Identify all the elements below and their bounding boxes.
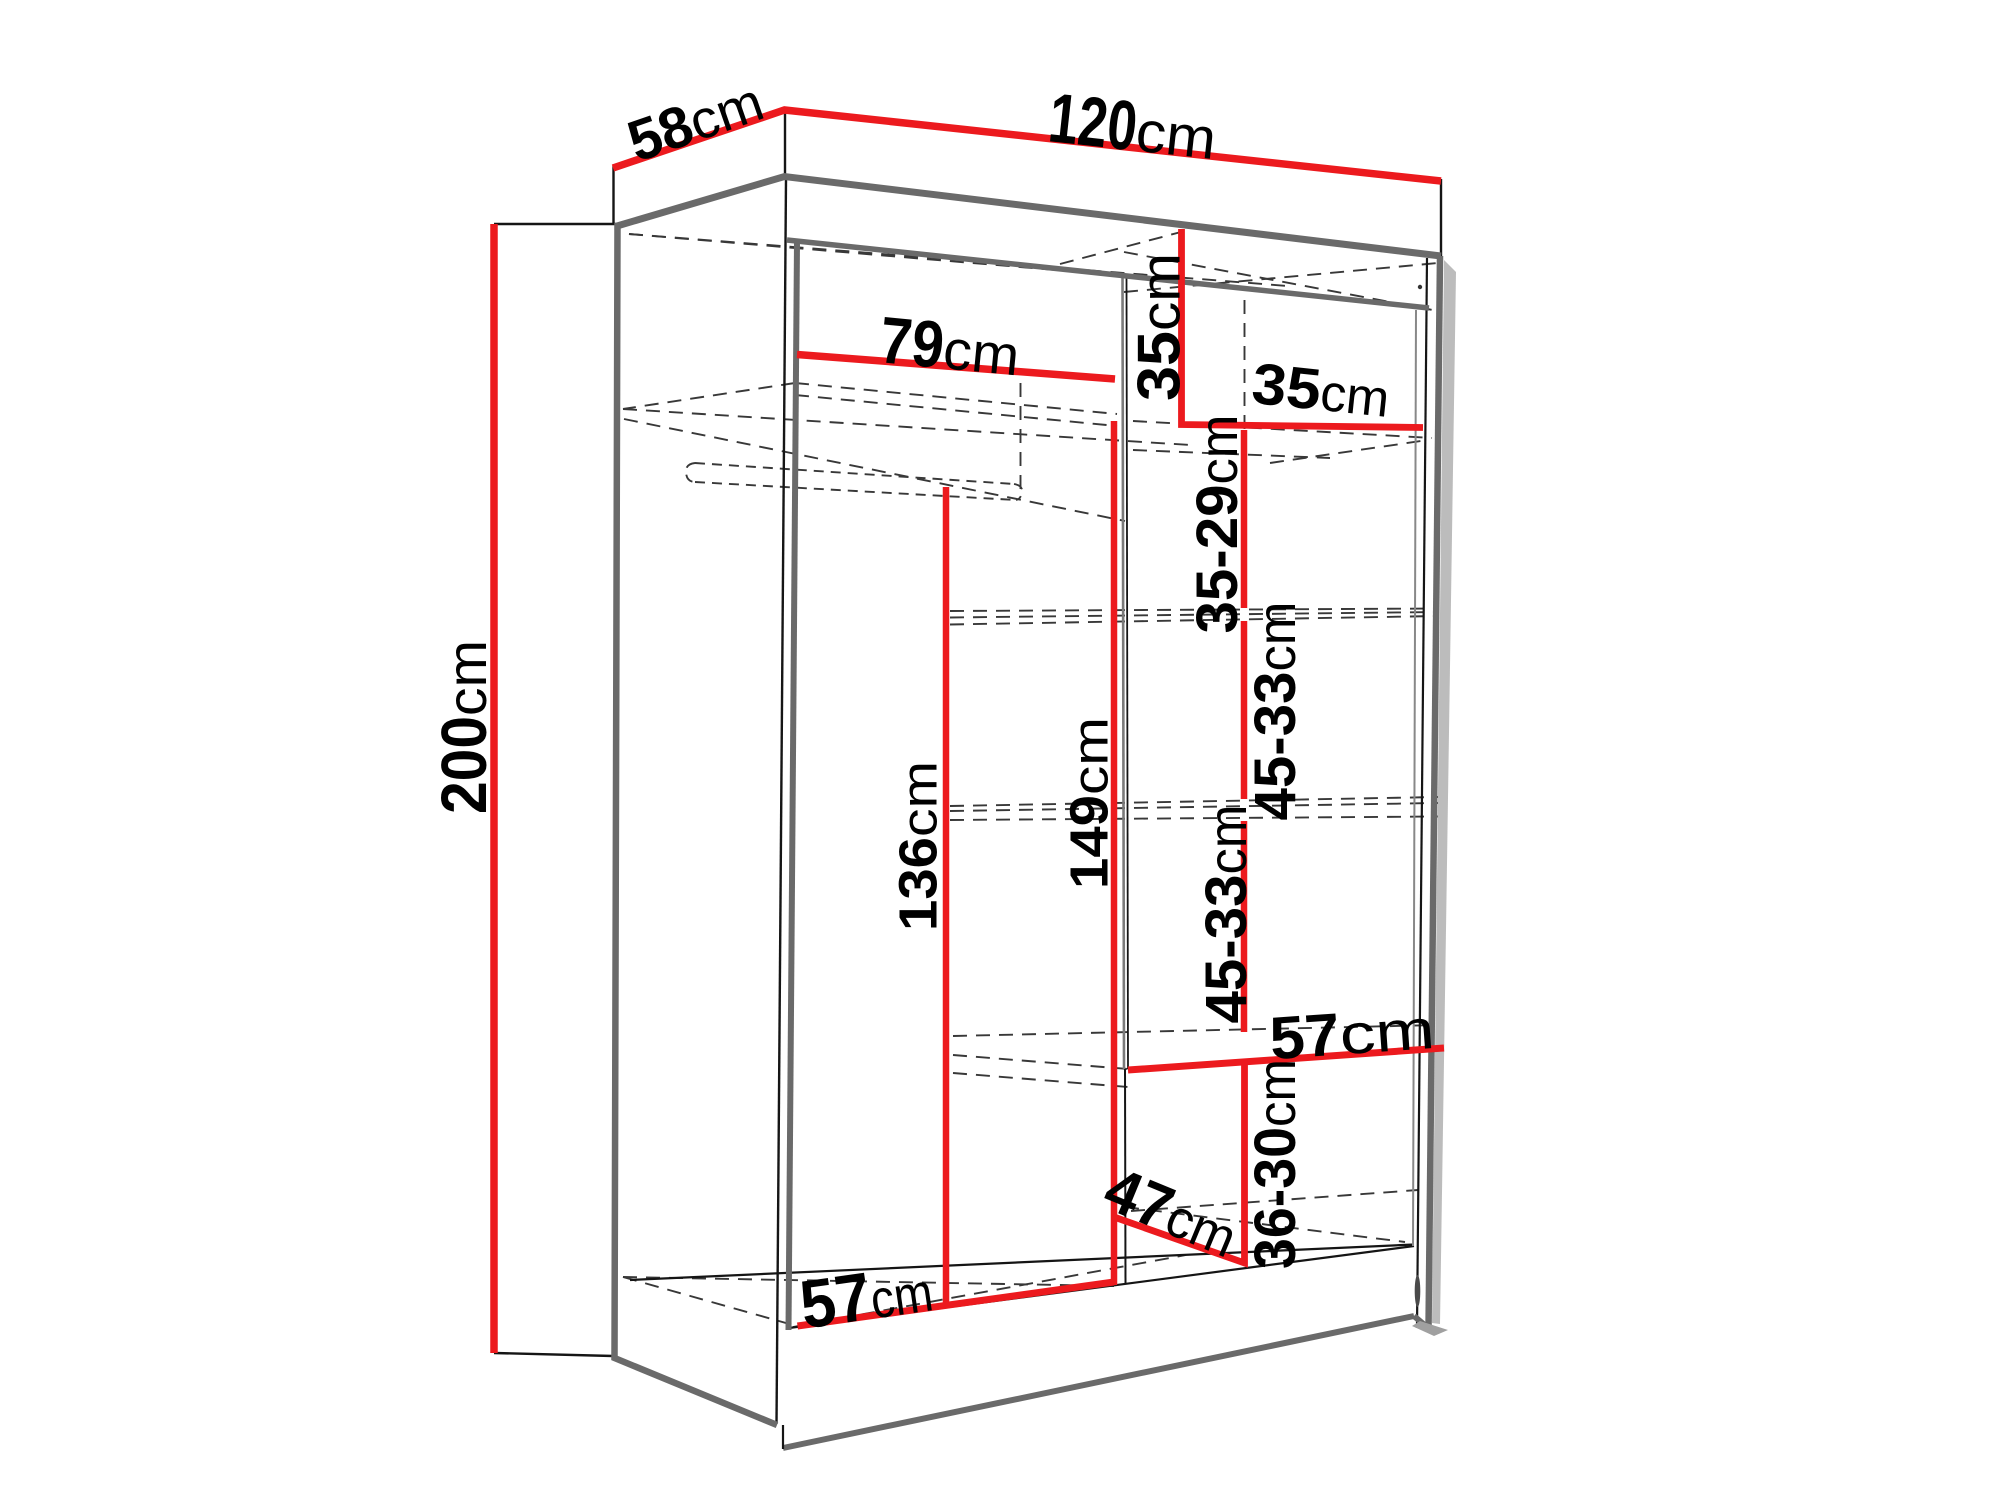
svg-text:45-33cm: 45-33cm [1194, 805, 1259, 1024]
svg-text:35cm: 35cm [1126, 253, 1193, 401]
svg-text:149cm: 149cm [1059, 717, 1119, 889]
svg-text:45-33cm: 45-33cm [1243, 602, 1308, 821]
svg-text:136cm: 136cm [888, 761, 948, 931]
svg-text:35-29cm: 35-29cm [1185, 415, 1250, 634]
svg-text:200cm: 200cm [428, 640, 500, 814]
svg-text:36-30cm: 36-30cm [1243, 1059, 1308, 1269]
